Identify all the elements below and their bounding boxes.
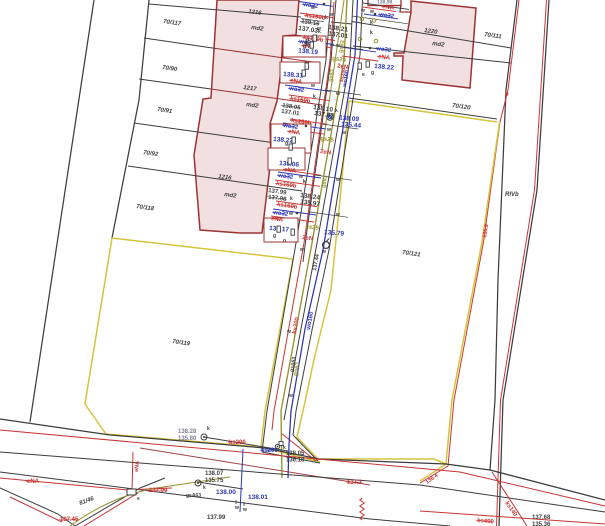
svg-text:137.45: 137.45	[60, 517, 79, 523]
svg-text:w: w	[335, 177, 340, 183]
svg-text:135.80: 135.80	[178, 436, 197, 442]
svg-text:g: g	[285, 141, 288, 147]
svg-text:w: w	[310, 83, 315, 89]
svg-text:135.75: 135.75	[205, 478, 224, 484]
svg-text:w: w	[310, 5, 315, 11]
svg-text:w: w	[335, 91, 340, 97]
svg-text:w: w	[341, 130, 346, 136]
svg-text:138.07: 138.07	[205, 471, 224, 477]
svg-text:w: w	[299, 247, 304, 253]
svg-text:w: w	[326, 127, 331, 133]
svg-text:w: w	[335, 212, 340, 218]
svg-text:138.00: 138.00	[216, 489, 236, 496]
svg-text:o: o	[283, 238, 286, 244]
svg-text:e: e	[137, 496, 140, 502]
svg-text:eNA: eNA	[134, 461, 141, 473]
svg-text:138.01: 138.01	[248, 494, 268, 501]
svg-text:w: w	[288, 211, 293, 217]
svg-text:138.28: 138.28	[178, 429, 197, 435]
svg-text:w: w	[234, 505, 239, 511]
svg-text:136.18: 136.18	[286, 458, 305, 464]
svg-text:k: k	[335, 108, 338, 114]
svg-text:w: w	[286, 329, 291, 335]
svg-text:137.99: 137.99	[207, 515, 226, 521]
svg-text:ks200: ks200	[229, 440, 246, 446]
svg-text:k: k	[370, 30, 373, 36]
svg-text:k: k	[283, 445, 286, 451]
svg-text:ks200: ks200	[261, 448, 278, 454]
svg-text:g: g	[306, 37, 309, 43]
svg-text:g: g	[273, 233, 276, 239]
svg-text:135.36: 135.36	[532, 522, 551, 526]
svg-text:w: w	[298, 174, 303, 180]
svg-text:137.68: 137.68	[532, 515, 551, 521]
svg-text:g: g	[303, 44, 306, 50]
svg-text:k: k	[303, 179, 306, 185]
svg-text:w: w	[360, 8, 365, 14]
svg-text:w: w	[316, 26, 321, 32]
svg-text:137.1: 137.1	[347, 480, 363, 486]
svg-text:w: w	[288, 393, 293, 399]
svg-text:eNA: eNA	[27, 479, 40, 485]
svg-text:k: k	[325, 15, 328, 21]
svg-text:e: e	[362, 72, 365, 78]
svg-text:k: k	[313, 94, 316, 100]
svg-text:w: w	[321, 249, 326, 255]
svg-text:k: k	[203, 485, 206, 491]
svg-text:w: w	[242, 507, 247, 513]
svg-text:w: w	[329, 12, 334, 18]
svg-text:w: w	[369, 9, 374, 15]
svg-text:k: k	[290, 196, 293, 202]
svg-text:gsA63: gsA63	[186, 493, 201, 499]
svg-text:138.05: 138.05	[286, 451, 305, 457]
svg-text:k: k	[207, 426, 210, 432]
svg-text:g: g	[371, 70, 374, 76]
svg-text:137.99: 137.99	[149, 488, 168, 494]
svg-text:RIVb: RIVb	[505, 192, 519, 198]
